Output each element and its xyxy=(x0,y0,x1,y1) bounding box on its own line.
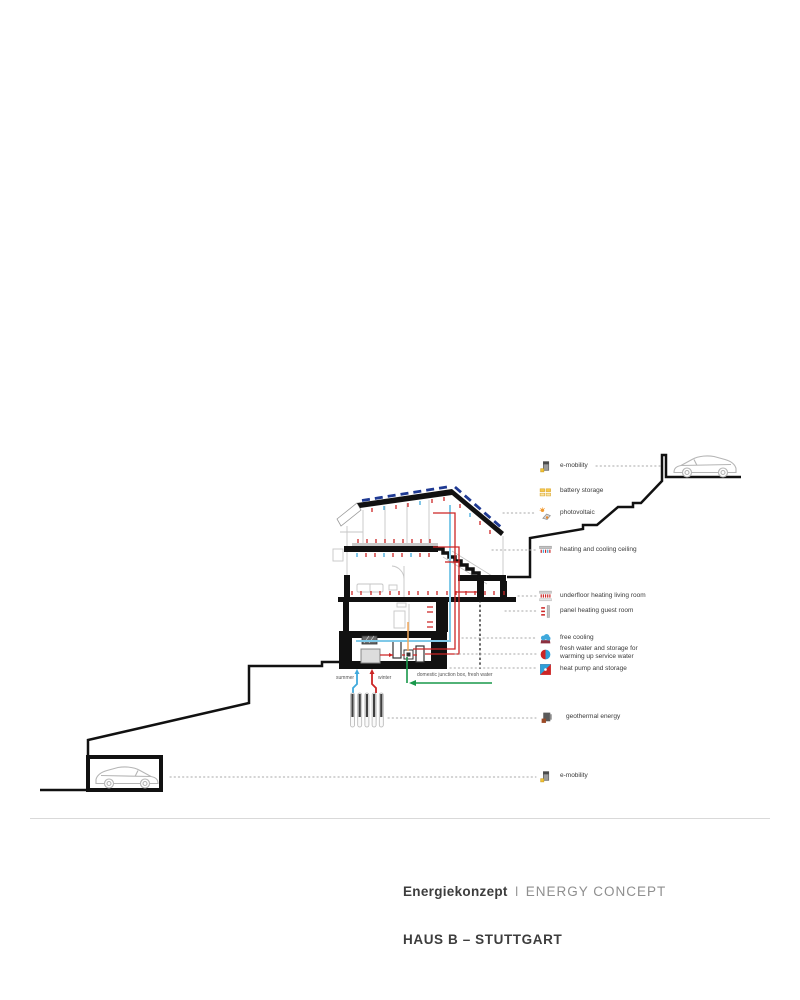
legend-label: heating and cooling ceiling xyxy=(560,546,637,554)
e-mobility-icon xyxy=(539,460,552,473)
heat-pump-storage-icon xyxy=(539,663,552,676)
sheet-title: EnergiekonzeptIENERGY CONCEPT xyxy=(403,884,666,899)
legend-label: underfloor heating living room xyxy=(560,592,646,600)
e-mobility-icon xyxy=(539,770,552,783)
title-separator: I xyxy=(508,884,526,899)
winter-arrow xyxy=(370,669,377,693)
panel-heating-icon xyxy=(539,605,552,618)
interior-lines xyxy=(333,500,503,631)
geothermal-energy-icon xyxy=(540,711,553,724)
legend-label: free cooling xyxy=(560,634,594,642)
energy-concept-sheet: summer winter domestic junction box, fre… xyxy=(0,0,800,1000)
underfloor-heating-icon xyxy=(539,590,552,603)
garage xyxy=(88,757,161,790)
garage-car-icon xyxy=(96,767,158,788)
storage-tank xyxy=(393,641,401,658)
title-english: ENERGY CONCEPT xyxy=(526,884,667,899)
heating-cooling-ceiling-icon xyxy=(539,544,552,557)
summer-arrow xyxy=(353,669,360,693)
legend-label: e-mobility xyxy=(560,462,588,470)
title-german: Energiekonzept xyxy=(403,884,508,899)
junction-label: domestic junction box, fresh water xyxy=(417,672,493,678)
heat-pump-unit xyxy=(361,649,380,663)
section-drawing xyxy=(0,0,800,1000)
free-cooling-icon xyxy=(539,632,552,645)
legend-label: panel heating guest room xyxy=(560,607,633,615)
stairs xyxy=(437,549,485,577)
geothermal-probes xyxy=(351,693,384,727)
separator-line xyxy=(30,818,770,819)
legend-label: geothermal energy xyxy=(566,713,620,721)
terrain-left xyxy=(40,662,340,790)
legend-label: e-mobility xyxy=(560,772,588,780)
project-title: HAUS B – STUTTGART xyxy=(403,932,562,947)
battery-storage-icon xyxy=(539,485,552,498)
winter-label: winter xyxy=(378,675,391,681)
legend-label: fresh water and storage for warming up s… xyxy=(560,645,638,660)
legend-label: photovoltaic xyxy=(560,509,595,517)
legend-label: battery storage xyxy=(560,487,603,495)
street-car-icon xyxy=(674,456,736,477)
summer-label: summer xyxy=(336,675,354,681)
roof xyxy=(337,489,504,536)
photovoltaic-icon xyxy=(539,507,552,520)
legend-label: heat pump and storage xyxy=(560,665,627,673)
fresh-water-storage-icon xyxy=(539,648,552,661)
